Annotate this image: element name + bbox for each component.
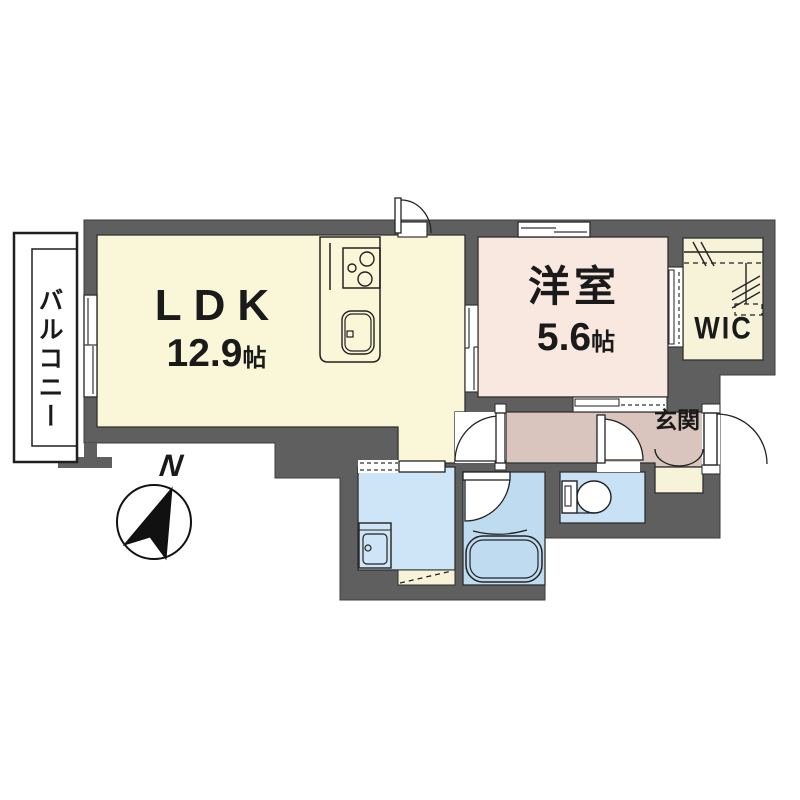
bedroom-area-value: 5.6 xyxy=(537,316,591,359)
entrance-step-floor xyxy=(655,467,703,493)
wic-label: WIC xyxy=(684,313,763,344)
toilet-icon xyxy=(562,481,611,513)
north-compass xyxy=(117,485,191,559)
washroom-sliding-door xyxy=(358,460,445,473)
balcony-label: バルコニー xyxy=(36,287,61,432)
bedroom-room-label: 洋室 xyxy=(486,266,662,308)
ldk-bedroom-sliding-door xyxy=(465,305,478,392)
washroom-floor xyxy=(358,467,455,570)
bedroom-area-label: 5.6帖 xyxy=(486,318,666,357)
ldk-area-value: 12.9 xyxy=(167,332,243,375)
ldk-room-label: LDK xyxy=(138,284,298,328)
kitchen-service-door xyxy=(395,198,431,237)
floor-plan: バルコニー LDK 12.9帖 洋室 5.6帖 WIC 玄関 N xyxy=(0,0,800,800)
ldk-area-label: 12.9帖 xyxy=(124,334,309,373)
bedroom-wic-sliding-door xyxy=(668,267,683,347)
entrance-label: 玄関 xyxy=(648,409,706,432)
ldk-area-unit: 帖 xyxy=(242,345,266,372)
ldk-hall-door xyxy=(455,404,506,470)
front-door xyxy=(702,404,767,474)
floor-plan-drawing xyxy=(0,0,800,800)
compass-north-label: N xyxy=(158,450,185,481)
bedroom-area-unit: 帖 xyxy=(591,329,615,356)
bedroom-top-window xyxy=(518,222,590,237)
left-wall-extension xyxy=(84,443,97,458)
balcony-window xyxy=(84,295,97,397)
